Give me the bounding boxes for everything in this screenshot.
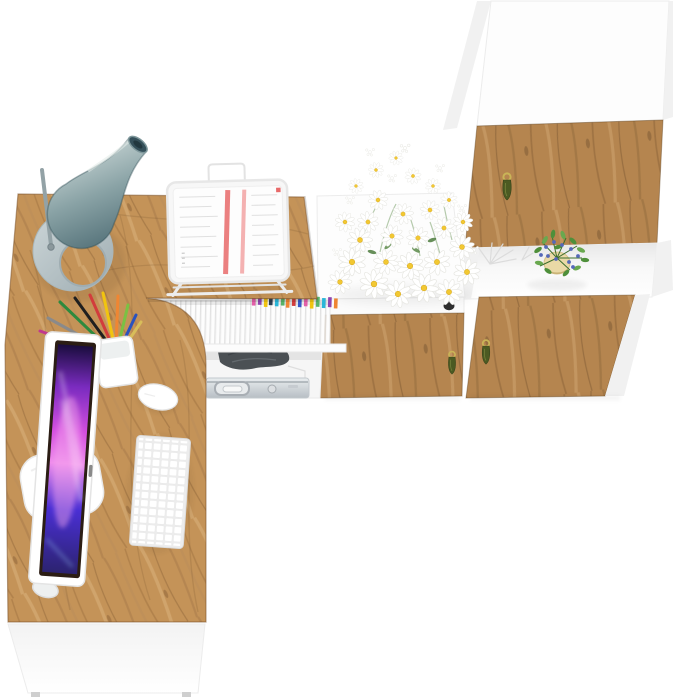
drawer-floor-shadow <box>325 396 460 400</box>
aluminium-case[interactable] <box>206 378 309 398</box>
desk-foot-left <box>31 692 40 697</box>
scene-canvas <box>0 0 673 700</box>
lamp-arm-screw <box>48 244 54 250</box>
desk-foot-right <box>182 692 191 697</box>
desk-edge-shadow <box>148 298 318 302</box>
tall-cabinet <box>443 1 673 400</box>
tall-cabinet-upper-door[interactable] <box>465 120 663 248</box>
middle-cabinet-wood-drawer[interactable] <box>320 313 464 398</box>
desk-set-render <box>0 0 673 700</box>
document-rack <box>164 162 291 298</box>
tall-cabinet-top <box>477 1 669 126</box>
case-latch <box>288 385 298 388</box>
case-handle-hole <box>223 386 242 392</box>
paper-red-dot <box>276 188 281 193</box>
case-clasp <box>268 385 276 393</box>
cabinet-floor-shadow <box>470 396 620 400</box>
plant-shadow <box>527 279 587 291</box>
desk-front-panel <box>8 624 205 693</box>
keyboard-keys <box>132 438 188 546</box>
